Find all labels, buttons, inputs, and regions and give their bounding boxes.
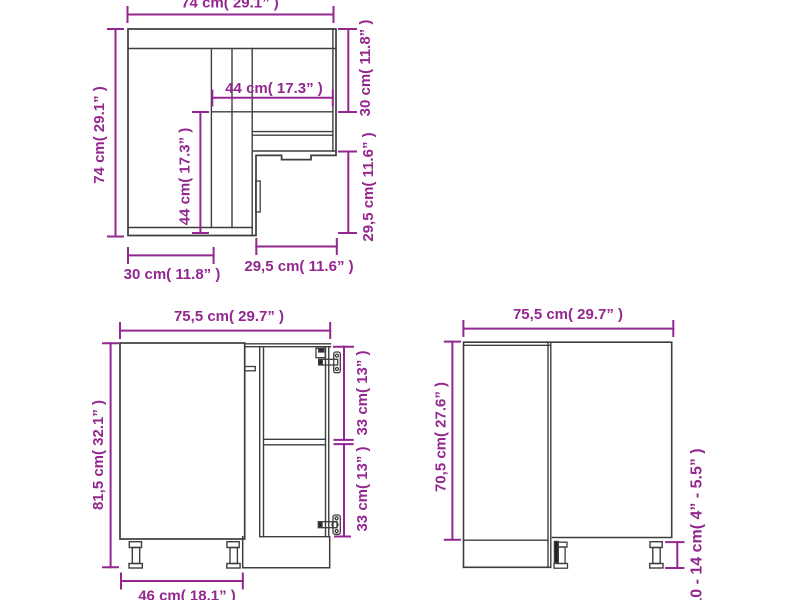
svg-text:44 cm( 17.3” ): 44 cm( 17.3” ): [225, 80, 323, 97]
svg-text:74 cm( 29.1” ): 74 cm( 29.1” ): [91, 86, 108, 184]
svg-text:75,5 cm( 29.7” ): 75,5 cm( 29.7” ): [174, 308, 284, 325]
svg-text:30 cm( 11.8” ): 30 cm( 11.8” ): [124, 266, 221, 283]
svg-text:81,5 cm( 32.1” ): 81,5 cm( 32.1” ): [90, 400, 107, 510]
svg-text:29,5 cm( 11.6” ): 29,5 cm( 11.6” ): [244, 258, 353, 275]
svg-text:10 - 14 cm( 4” - 5.5” ): 10 - 14 cm( 4” - 5.5” ): [689, 448, 706, 600]
svg-text:70,5 cm( 27.6” ): 70,5 cm( 27.6” ): [433, 382, 450, 492]
svg-text:33 cm( 13” ): 33 cm( 13” ): [354, 350, 371, 435]
svg-text:46 cm( 18.1” ): 46 cm( 18.1” ): [138, 588, 236, 600]
svg-text:75,5 cm( 29.7” ): 75,5 cm( 29.7” ): [513, 306, 623, 323]
svg-text:29,5 cm( 11.6” ): 29,5 cm( 11.6” ): [360, 132, 377, 241]
svg-text:44 cm( 17.3” ): 44 cm( 17.3” ): [177, 128, 194, 226]
svg-text:33 cm( 13” ): 33 cm( 13” ): [354, 446, 371, 531]
svg-text:30 cm( 11.8” ): 30 cm( 11.8” ): [357, 20, 374, 117]
svg-text:74 cm( 29.1” ): 74 cm( 29.1” ): [181, 0, 279, 12]
